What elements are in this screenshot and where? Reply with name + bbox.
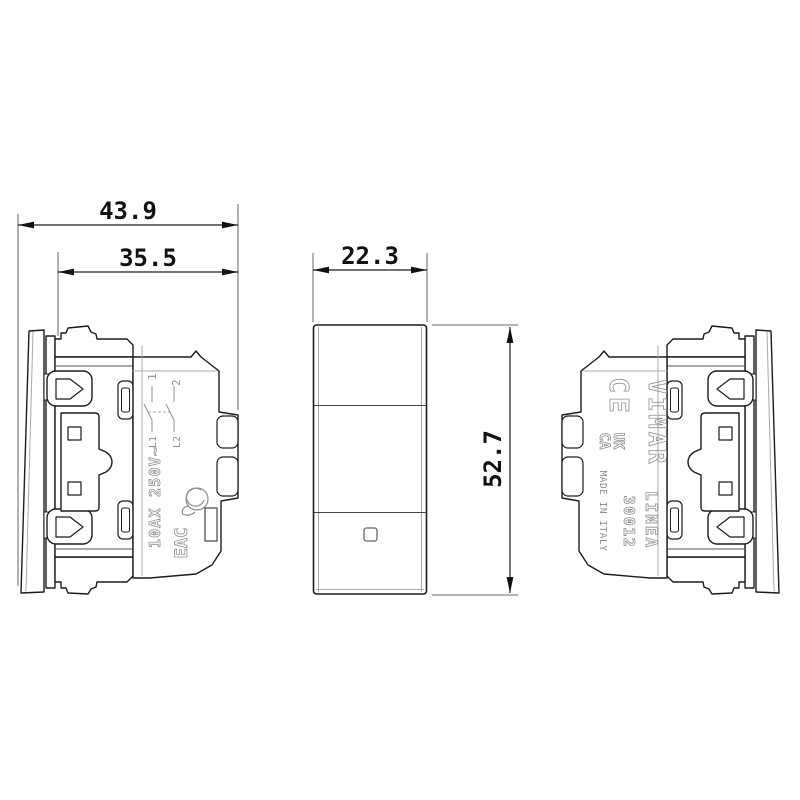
ce-mark: CE xyxy=(603,377,633,416)
rating-text: 10AX 250V~ xyxy=(146,446,164,548)
label-window xyxy=(205,508,217,541)
terminal-label-l2: L2 xyxy=(172,436,183,448)
right-side-view: CE UK CA VIMAR MADE IN ITALY LINEA 30012 xyxy=(562,326,779,594)
indicator-window xyxy=(364,528,377,541)
dim-mount-depth-value: 35.5 xyxy=(119,244,177,272)
series-text: LINEA xyxy=(642,491,661,549)
ukca-line2: CA xyxy=(596,433,612,450)
terminal-label-1: 1 xyxy=(146,373,159,380)
drawing-canvas: 1 2 L1 L2 10AX 250V~ EAC CE UK C xyxy=(0,0,800,800)
dim-total-depth-value: 43.9 xyxy=(99,197,157,225)
dim-height-value: 52.7 xyxy=(479,430,507,488)
dim-width-value: 22.3 xyxy=(341,242,399,270)
eac-mark: EAC xyxy=(172,528,192,559)
front-face xyxy=(314,325,427,594)
front-view xyxy=(314,325,427,594)
left-side-view: 1 2 L1 L2 10AX 250V~ EAC xyxy=(21,326,238,594)
made-in-text: MADE IN ITALY xyxy=(597,471,608,552)
model-text: 30012 xyxy=(620,496,638,549)
technical-drawing: 1 2 L1 L2 10AX 250V~ EAC CE UK C xyxy=(0,0,800,800)
terminal-label-2: 2 xyxy=(170,379,183,386)
brand-text: VIMAR xyxy=(643,379,671,466)
ukca-mark: UK CA xyxy=(596,433,626,450)
